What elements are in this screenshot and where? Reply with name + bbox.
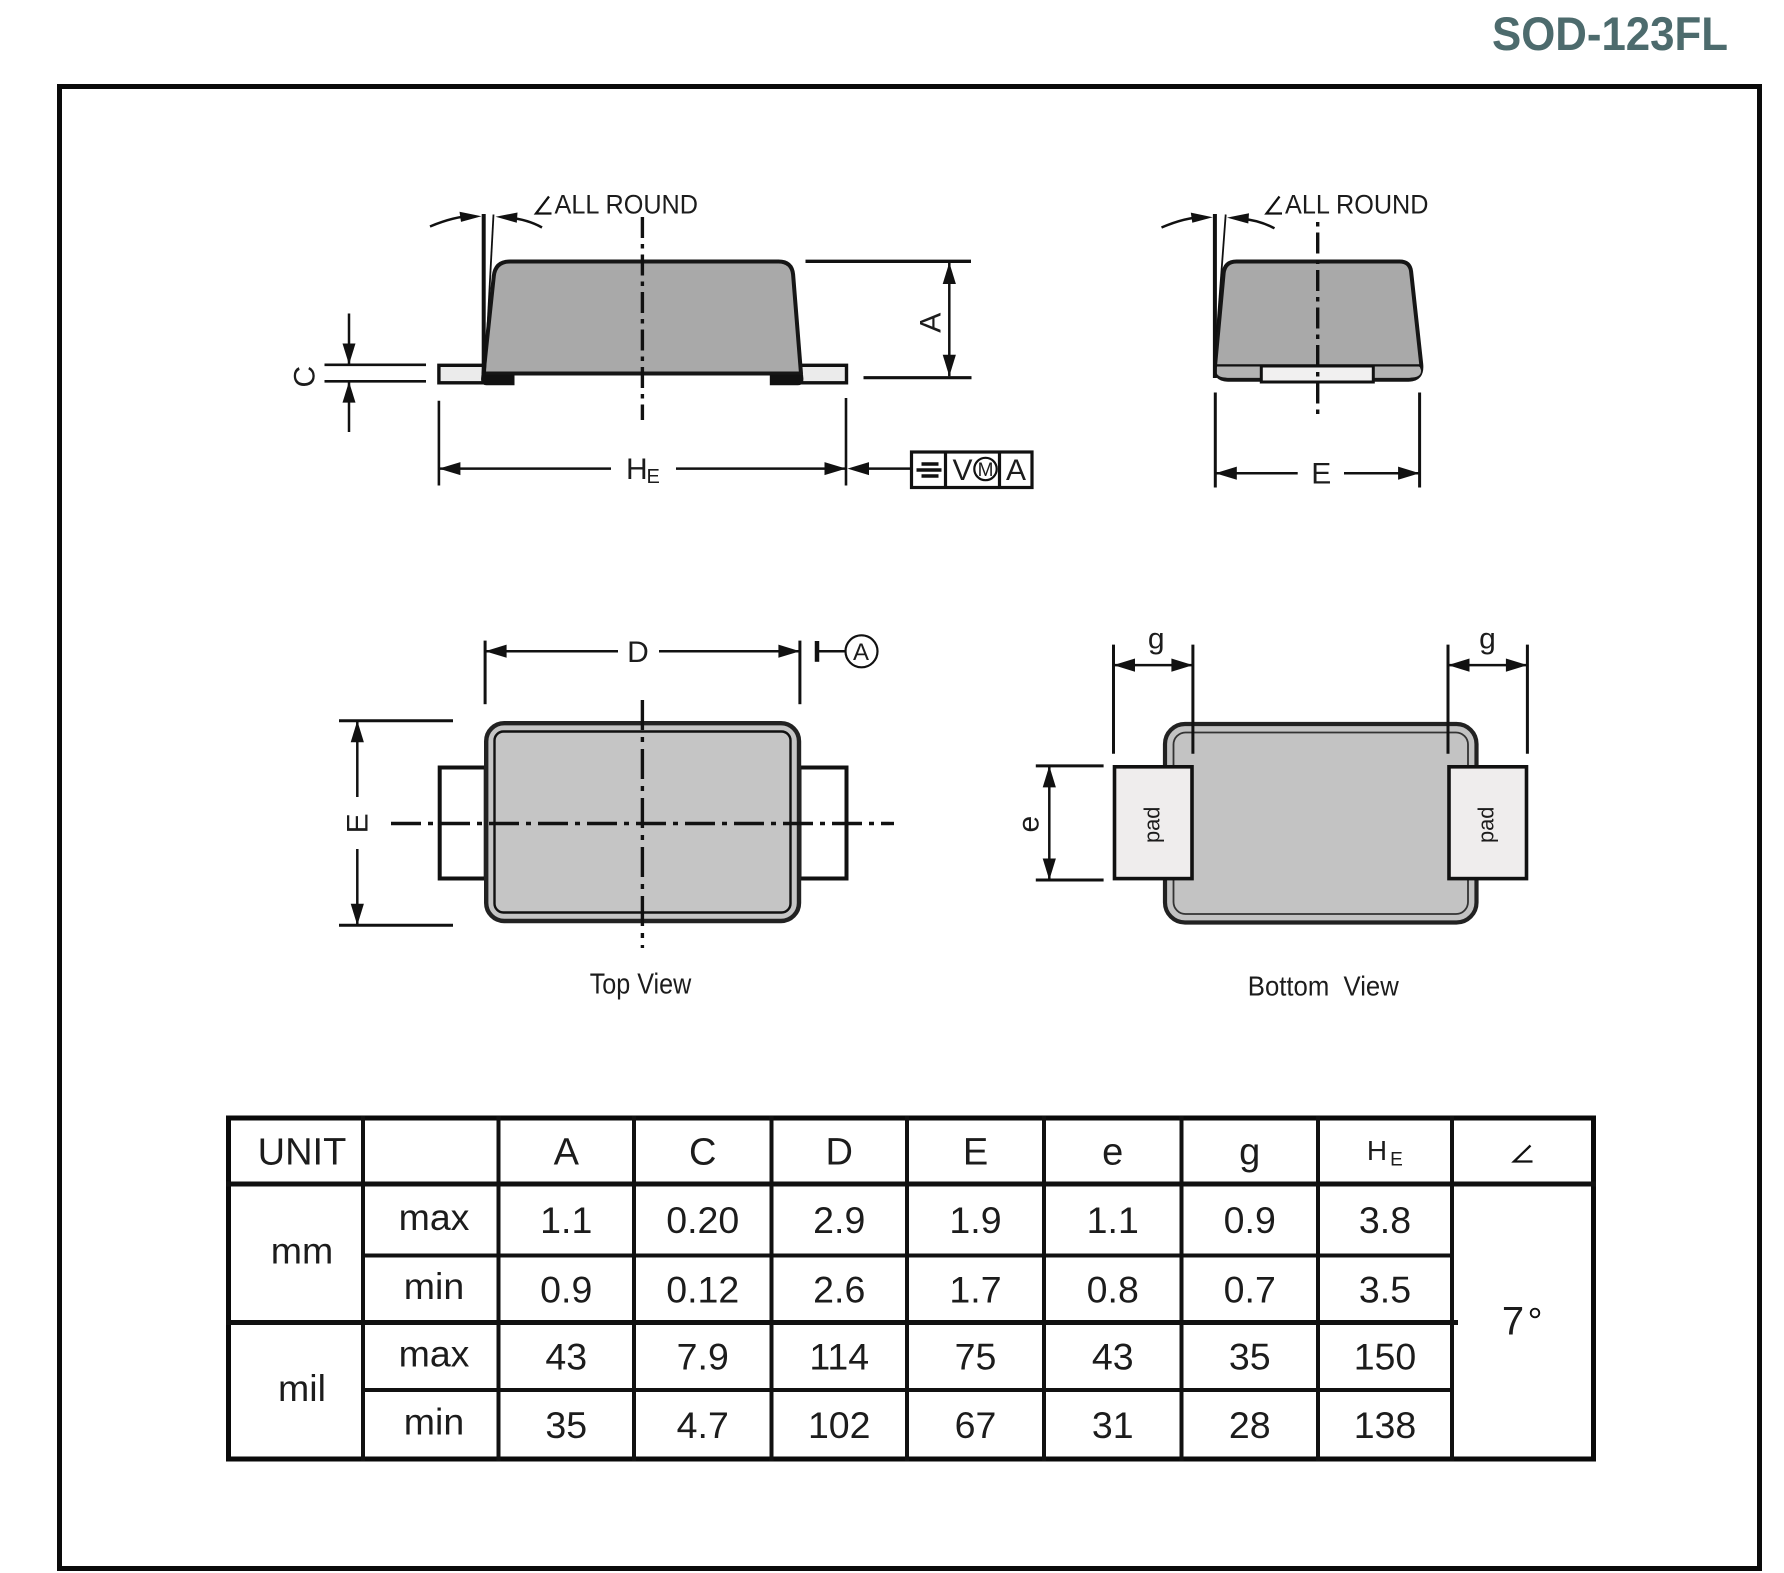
svg-text:35: 35 [545,1404,587,1446]
svg-text:75: 75 [955,1336,997,1378]
svg-text:114: 114 [809,1336,869,1378]
svg-text:3.5: 3.5 [1359,1269,1411,1311]
svg-text:max: max [399,1332,470,1374]
svg-text:C: C [289,366,322,388]
svg-text:SOD-123FL: SOD-123FL [1492,8,1728,61]
svg-text:M: M [978,460,994,481]
svg-text:UNIT: UNIT [258,1132,347,1174]
svg-text:ALL ROUND: ALL ROUND [1285,190,1429,220]
svg-text:0.7: 0.7 [1224,1269,1276,1311]
svg-text:H: H [1367,1135,1387,1166]
svg-text:1.7: 1.7 [949,1269,1001,1311]
svg-text:A: A [1006,454,1026,487]
svg-text:7.9: 7.9 [677,1336,729,1378]
svg-text:138: 138 [1354,1404,1417,1446]
svg-text:E: E [1311,458,1331,491]
svg-text:E: E [963,1132,988,1174]
svg-text:3.8: 3.8 [1359,1199,1411,1241]
svg-text:min: min [404,1401,464,1443]
svg-text:min: min [404,1265,464,1307]
svg-text:g: g [1239,1132,1260,1174]
svg-text:28: 28 [1229,1404,1271,1446]
svg-text:mil: mil [278,1367,326,1409]
svg-text:e: e [1013,816,1046,833]
svg-text:Bottom View: Bottom View [1248,970,1400,1001]
svg-text:Top View: Top View [590,969,692,1001]
svg-text:E: E [342,813,375,833]
svg-text:H: H [626,453,648,486]
svg-text:E: E [647,466,660,488]
svg-text:2.9: 2.9 [813,1199,865,1241]
svg-text:A: A [853,639,869,666]
svg-text:pad: pad [1140,807,1165,844]
svg-text:67: 67 [955,1404,997,1446]
svg-text:pad: pad [1474,807,1499,844]
svg-text:150: 150 [1354,1336,1417,1378]
svg-text:43: 43 [545,1336,587,1378]
svg-text:1.1: 1.1 [1087,1199,1139,1241]
svg-text:D: D [826,1132,853,1174]
svg-text:g: g [1479,623,1496,656]
svg-text:mm: mm [271,1229,333,1271]
svg-text:102: 102 [808,1404,871,1446]
svg-text:A: A [554,1132,580,1174]
svg-text:E: E [1390,1150,1403,1171]
svg-text:0.9: 0.9 [540,1269,592,1311]
svg-text:A: A [915,313,948,333]
svg-text:0.8: 0.8 [1087,1269,1139,1311]
svg-text:0.9: 0.9 [1224,1199,1276,1241]
svg-text:0.20: 0.20 [666,1199,739,1241]
svg-text:0.12: 0.12 [666,1269,739,1311]
svg-text:C: C [689,1132,716,1174]
svg-text:D: D [627,636,649,669]
svg-text:7: 7 [1502,1300,1524,1344]
svg-text:1.1: 1.1 [540,1199,592,1241]
svg-text:e: e [1102,1132,1123,1174]
svg-text:43: 43 [1092,1336,1134,1378]
svg-text:g: g [1148,623,1165,656]
svg-text:2.6: 2.6 [813,1269,865,1311]
svg-text:35: 35 [1229,1336,1271,1378]
svg-text:ALL ROUND: ALL ROUND [555,190,699,220]
svg-text:1.9: 1.9 [949,1199,1001,1241]
svg-text:V: V [952,454,972,487]
svg-text:31: 31 [1092,1404,1134,1446]
svg-text:4.7: 4.7 [677,1404,729,1446]
svg-text:max: max [399,1196,470,1238]
